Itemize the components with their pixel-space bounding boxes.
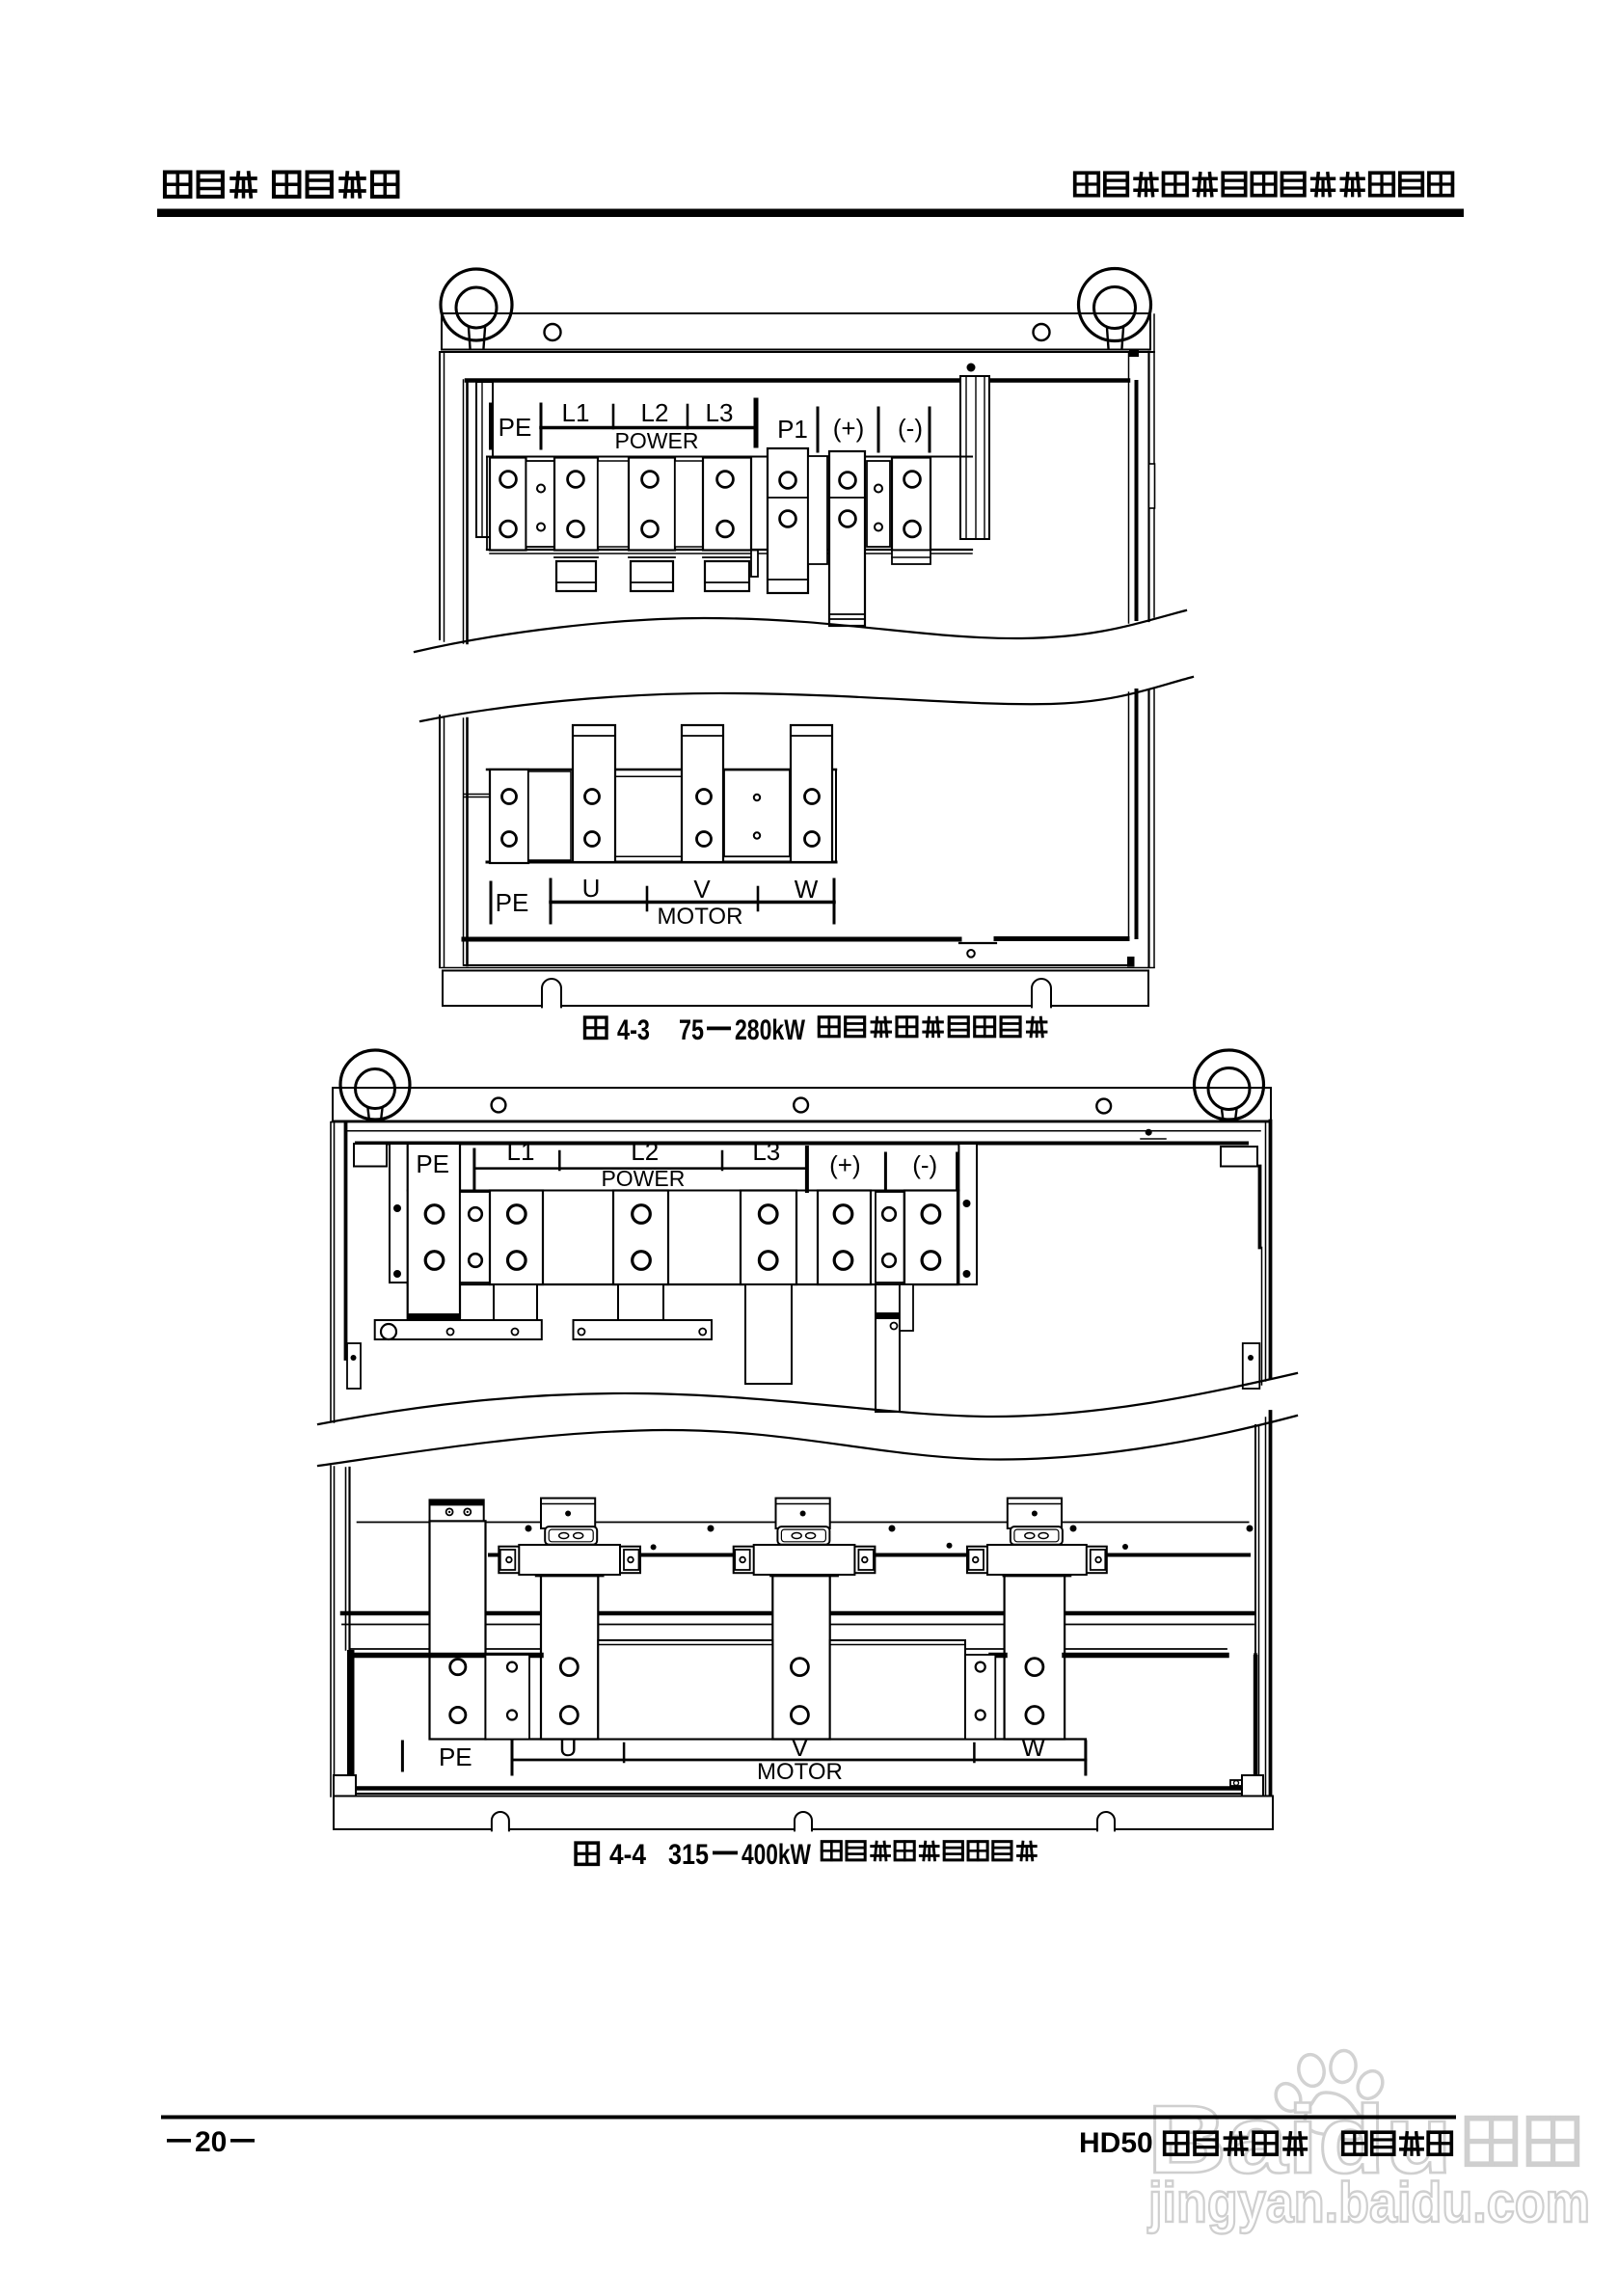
svg-text:400kW: 400kW (742, 1839, 812, 1871)
svg-text:(-): (-) (898, 414, 923, 443)
svg-text:POWER: POWER (601, 1166, 685, 1191)
svg-text:PE: PE (499, 413, 532, 442)
svg-text:(+): (+) (833, 414, 865, 443)
svg-text:L2: L2 (631, 1137, 659, 1166)
svg-text:POWER: POWER (615, 428, 699, 453)
svg-text:PE: PE (496, 888, 529, 917)
svg-text:W: W (1021, 1733, 1045, 1762)
svg-text:4-3: 4-3 (617, 1014, 650, 1046)
svg-text:W: W (795, 875, 819, 904)
svg-text:(+): (+) (829, 1150, 861, 1179)
svg-text:PE: PE (439, 1742, 472, 1771)
svg-text:280kW: 280kW (735, 1014, 806, 1046)
svg-text:MOTOR: MOTOR (757, 1759, 843, 1785)
svg-text:U: U (559, 1733, 578, 1762)
svg-text:HD50: HD50 (1079, 2127, 1153, 2159)
svg-text:L2: L2 (641, 398, 669, 427)
svg-text:20: 20 (195, 2126, 227, 2158)
svg-text:V: V (693, 875, 711, 904)
svg-text:75: 75 (679, 1014, 704, 1046)
svg-text:315: 315 (668, 1839, 709, 1871)
svg-text:4-4: 4-4 (609, 1839, 646, 1871)
svg-text:MOTOR: MOTOR (658, 904, 743, 930)
svg-text:(-): (-) (912, 1150, 937, 1179)
svg-text:L3: L3 (752, 1137, 780, 1166)
svg-text:U: U (582, 874, 601, 903)
svg-text:L3: L3 (706, 398, 734, 427)
svg-text:P1: P1 (777, 415, 808, 444)
svg-text:jingyan.baidu.com: jingyan.baidu.com (1147, 2172, 1590, 2234)
svg-text:V: V (792, 1733, 809, 1762)
svg-text:L1: L1 (562, 398, 590, 427)
svg-text:PE: PE (416, 1149, 449, 1178)
svg-text:L1: L1 (507, 1137, 535, 1166)
